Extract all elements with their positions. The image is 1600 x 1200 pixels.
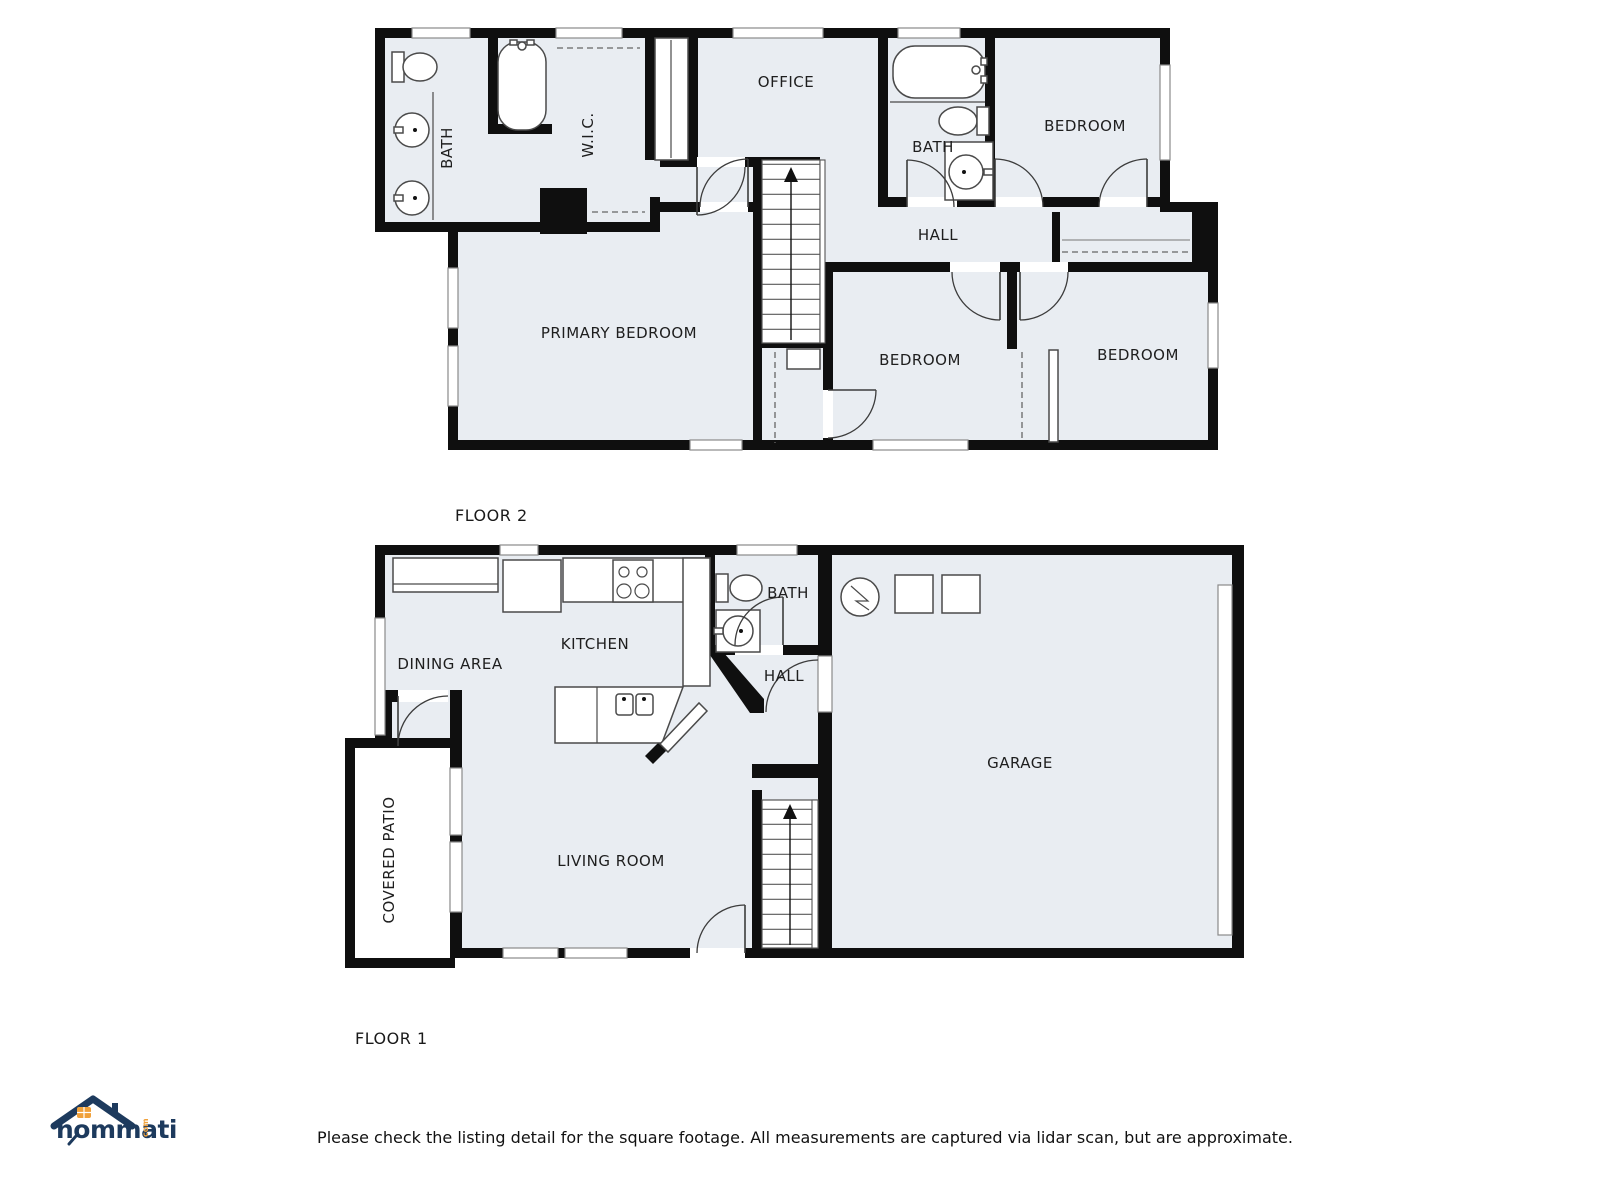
room-label-dining-area: DINING AREA [397, 655, 502, 673]
floor-plan-floor-2: BATH W.I.C. OFFICE BATH BEDROOM HALL PRI… [375, 28, 1218, 525]
disclaimer-text: Please check the listing detail for the … [317, 1128, 1293, 1147]
floor-plan-page: BATH W.I.C. OFFICE BATH BEDROOM HALL PRI… [0, 0, 1600, 1200]
floor1-staircase [762, 800, 818, 948]
logo-suffix: com [141, 1118, 150, 1137]
toilet-tank [392, 52, 404, 82]
room-label-office: OFFICE [758, 73, 814, 91]
floor-plan-floor-1: DINING AREA KITCHEN BATH HALL GARAGE COV… [345, 545, 1244, 1048]
footer: hommati com Please check the listing det… [54, 1099, 1293, 1147]
floor1-garage-fixtures [841, 575, 980, 616]
floor2-label: FLOOR 2 [455, 506, 528, 525]
room-label-garage: GARAGE [987, 754, 1053, 772]
room-label-wic: W.I.C. [579, 112, 597, 157]
bathtub-icon [498, 42, 546, 130]
room-label-hall-f2: HALL [918, 226, 958, 244]
room-label-primary-bedroom: PRIMARY BEDROOM [541, 324, 697, 342]
room-label-kitchen: KITCHEN [561, 635, 630, 653]
sink-icon [723, 616, 753, 646]
fridge-icon [503, 560, 561, 612]
dining-counter [393, 558, 498, 592]
water-heater-icon [841, 578, 879, 616]
room-label-living-room: LIVING ROOM [557, 852, 665, 870]
toilet-bowl [730, 575, 762, 601]
toilet-bowl [403, 53, 437, 81]
toilet-bowl [939, 107, 977, 135]
room-label-covered-patio: COVERED PATIO [380, 796, 398, 923]
floor1-label: FLOOR 1 [355, 1029, 428, 1048]
room-label-bedroom-bottom-right: BEDROOM [1097, 346, 1179, 364]
room-label-bath-center: BATH [912, 138, 954, 156]
toilet-tank [977, 107, 989, 135]
floor2-staircase [762, 160, 825, 343]
floor-plan-canvas: BATH W.I.C. OFFICE BATH BEDROOM HALL PRI… [0, 0, 1600, 1200]
appliance-icon [895, 575, 933, 613]
hommati-logo: hommati com [54, 1099, 177, 1144]
bathtub-icon [893, 46, 985, 98]
room-label-bedroom-top-right: BEDROOM [1044, 117, 1126, 135]
logo-chimney [112, 1103, 118, 1112]
room-label-bedroom-bottom-center: BEDROOM [879, 351, 961, 369]
floor1-bath-fixtures [714, 574, 762, 652]
toilet-tank [716, 574, 728, 602]
appliance-icon [942, 575, 980, 613]
room-label-bath-f1: BATH [767, 584, 809, 602]
room-label-hall-f1: HALL [764, 667, 804, 685]
garage-door [1218, 585, 1232, 935]
room-label-bath-left: BATH [438, 127, 456, 169]
kitchen-counter-right [683, 558, 710, 686]
